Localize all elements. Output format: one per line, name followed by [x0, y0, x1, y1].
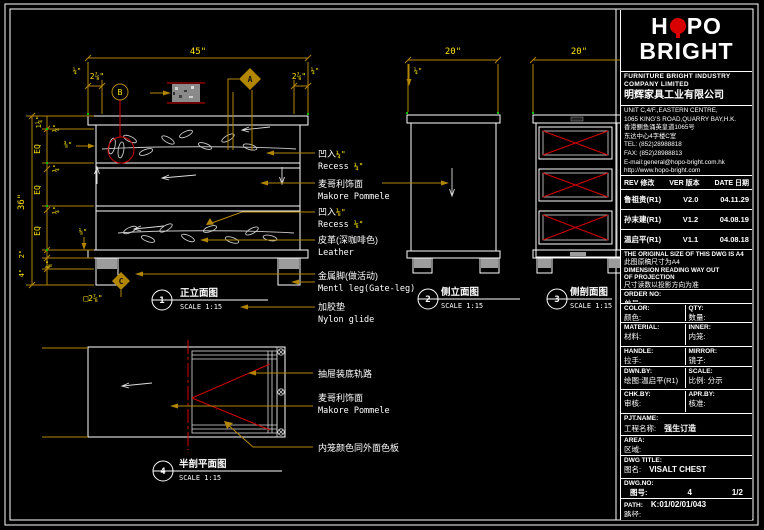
section-drawer-3: [539, 211, 612, 244]
company-name-cn: 明辉家具工业有限公司: [624, 89, 749, 102]
svg-text:SCALE 1:15: SCALE 1:15: [180, 303, 222, 311]
annotation-labels: 凹入¼" Recess ¼" 麦哥利饰面 Makore Pommele 凹入⅛"…: [318, 149, 415, 453]
address-line: 1065 KING'S ROAD,QUARRY BAY,H.K.: [624, 116, 749, 125]
company-name-block: FURNITURE BRIGHT INDUSTRY COMPANY LIMITE…: [621, 72, 752, 106]
svg-text:EQ: EQ: [33, 185, 42, 195]
svg-text:SCALE 1:15: SCALE 1:15: [179, 474, 221, 482]
inner-color-label: 内笼颜色同外面色板: [318, 442, 399, 453]
plan-screw-symbols: [278, 349, 284, 435]
svg-text:4": 4": [18, 269, 26, 277]
leather-label: 皮革(深咖啡色): [318, 234, 378, 245]
svg-text:Makore Pommele: Makore Pommele: [318, 406, 390, 416]
svg-text:Makore Pommele: Makore Pommele: [318, 192, 390, 202]
svg-text:20": 20": [445, 47, 461, 57]
svg-text:2: 2: [425, 295, 430, 305]
svg-text:2": 2": [18, 250, 26, 258]
makore-veneer-plan-label: 麦哥利饰面: [318, 392, 363, 403]
material-inner-field: MATERIAL:材料: INNER:内笼:: [621, 323, 752, 347]
svg-text:2⅞": 2⅞": [90, 72, 104, 81]
company-address-block: UNIT C,4/F.,EASTERN CENTRE, 1065 KING'S …: [621, 106, 752, 176]
side-elevation-view: 20" ¼": [405, 47, 501, 273]
detail-marker-B: B: [108, 84, 134, 163]
svg-text:¼": ¼": [311, 67, 319, 75]
svg-text:¾": ¾": [52, 164, 60, 172]
svg-text:45": 45": [190, 47, 206, 57]
address-line: 东达中心4字楼C室: [624, 133, 749, 142]
svg-text:半剖平面图: 半剖平面图: [179, 458, 227, 470]
handle-mirror-field: HANDLE:拉手: MIRROR:镜子:: [621, 347, 752, 367]
drawing-number-field: DWG.NO: 图号:41/2: [621, 479, 752, 499]
finish-sample-swatch: [150, 83, 205, 103]
project-name-field: PJT.NAME: 工程名称:强生订造: [621, 414, 752, 436]
checked-approved-field: CHK.BY:审核: APR.BY:核准:: [621, 390, 752, 414]
svg-text:1: 1: [159, 296, 164, 306]
detail-marker-A: A: [228, 68, 261, 150]
ver-col-header: VER 版本: [669, 178, 699, 188]
svg-text:36": 36": [17, 194, 27, 210]
nylon-glide-left: [97, 258, 117, 269]
company-logo: HPO BRIGHT: [621, 10, 752, 72]
logo-bright: BRIGHT: [624, 39, 749, 64]
svg-text:⅜": ⅜": [64, 140, 72, 149]
logo-red-dot-icon: [670, 18, 686, 34]
section-drawer-2: [539, 169, 612, 201]
svg-text:C: C: [119, 277, 124, 286]
view-title-3: 3 侧剖面图 SCALE 1:15: [547, 286, 612, 310]
color-qty-field: COLOR:颜色: QTY:数量:: [621, 304, 752, 323]
rev-col-header: REV 修改: [624, 178, 654, 188]
project-name-value: 强生订造: [664, 423, 696, 434]
revision-row: 温启平(R1) V1.1 04.08.18: [621, 230, 752, 250]
svg-text:侧立面图: 侧立面图: [441, 286, 479, 298]
svg-text:□2⅞": □2⅞": [83, 294, 102, 303]
date-col-header: DATE 日期: [715, 178, 749, 188]
svg-text:Leather: Leather: [318, 248, 354, 258]
svg-text:A: A: [248, 75, 253, 84]
makore-veneer-label: 麦哥利饰面: [318, 178, 363, 189]
svg-text:1¼": 1¼": [35, 116, 43, 129]
nylon-glide-label: 加胶垫: [318, 301, 345, 312]
drawing-title-field: DWG TITLE: 图名:VISALT CHEST: [621, 456, 752, 479]
svg-text:B: B: [118, 88, 123, 97]
svg-text:SCALE 1:15: SCALE 1:15: [570, 302, 612, 310]
drawer-runner-label: 抽屉装底轨路: [318, 368, 372, 379]
svg-text:SCALE 1:15: SCALE 1:15: [441, 302, 483, 310]
sheet-count: 1/2: [732, 488, 743, 497]
address-line: 香港鲗鱼涌英皇道1065号: [624, 124, 749, 133]
cad-sheet: A B C 45" 2⅞" ¼" 2⅞": [0, 0, 764, 530]
revision-row: 孙末建(R1) V1.2 04.08.19: [621, 210, 752, 230]
svg-text:EQ: EQ: [33, 226, 42, 236]
section-drawer-1: [539, 127, 612, 159]
side-section-view: 20": [530, 47, 628, 273]
drawnby-scale-field: DWN.BY:绘图:温启平(R1) SCALE:比例: 分示: [621, 367, 752, 390]
path-field: PATH:K:01/02/01/043 路径:: [621, 499, 752, 517]
drawing-title-value: VISALT CHEST: [649, 465, 706, 474]
svg-text:¾": ¾": [52, 124, 60, 132]
svg-text:2⅞": 2⅞": [292, 72, 306, 81]
svg-text:侧剖面图: 侧剖面图: [570, 286, 608, 298]
recess-quarter-label: 凹入¼": [318, 149, 346, 159]
company-name-en2: COMPANY LIMITED: [624, 81, 749, 89]
vine-decor-top-drawer: [102, 129, 296, 157]
sheet-number: 4: [687, 488, 691, 497]
svg-text:¼": ¼": [414, 67, 422, 75]
nylon-glide-right: [279, 258, 299, 269]
drawing-notes: THE ORIGINAL SIZE OF THIS DWG IS A4 此图原稿…: [621, 250, 752, 290]
view-title-4: 4 半剖平面图 SCALE 1:15: [153, 458, 282, 482]
logo-hopo: HPO: [624, 14, 749, 39]
svg-text:3: 3: [554, 295, 559, 305]
svg-text:Recess ¼": Recess ¼": [318, 162, 363, 172]
recess-eighth-label: 凹入⅛": [318, 207, 346, 217]
area-field: AREA: 区域:: [621, 436, 752, 456]
phone-line: TEL: (852)28988818: [624, 141, 749, 150]
file-path-value: K:01/02/01/043: [651, 500, 706, 509]
svg-text:Recess ⅛": Recess ⅛": [318, 220, 363, 230]
address-line: UNIT C,4/F.,EASTERN CENTRE,: [624, 107, 749, 116]
title-block: HPO BRIGHT FURNITURE BRIGHT INDUSTRY COM…: [620, 10, 752, 520]
svg-text:¼": ¼": [73, 67, 81, 75]
svg-text:¾": ¾": [52, 206, 60, 214]
metal-leg-label: 金属脚(做活动): [318, 270, 378, 281]
email-line: E-mail:general@hopo-bright.com.hk: [624, 159, 749, 168]
order-no-field: ORDER NO: 单号:: [621, 290, 752, 304]
svg-text:⅛": ⅛": [79, 227, 87, 236]
revision-header: REV 修改 VER 版本 DATE 日期: [621, 176, 752, 190]
view-title-2: 2 侧立面图 SCALE 1:15: [418, 286, 520, 310]
plan-view: [42, 340, 285, 450]
svg-text:4: 4: [160, 467, 166, 477]
svg-text:Mentl leg(Gate-leg): Mentl leg(Gate-leg): [318, 284, 415, 294]
website-line: http://www.hopo-bright.com: [624, 167, 749, 176]
fax-line: FAX: (852)28988813: [624, 150, 749, 159]
svg-text:正立面图: 正立面图: [180, 287, 218, 299]
svg-text:⅝": ⅝": [45, 260, 53, 268]
company-name-en1: FURNITURE BRIGHT INDUSTRY: [624, 73, 749, 81]
svg-text:Nylon glide: Nylon glide: [318, 315, 374, 325]
revision-row: 鲁祖贵(R1) V2.0 04.11.29: [621, 190, 752, 210]
svg-text:20": 20": [571, 47, 587, 57]
svg-text:EQ: EQ: [33, 144, 42, 154]
